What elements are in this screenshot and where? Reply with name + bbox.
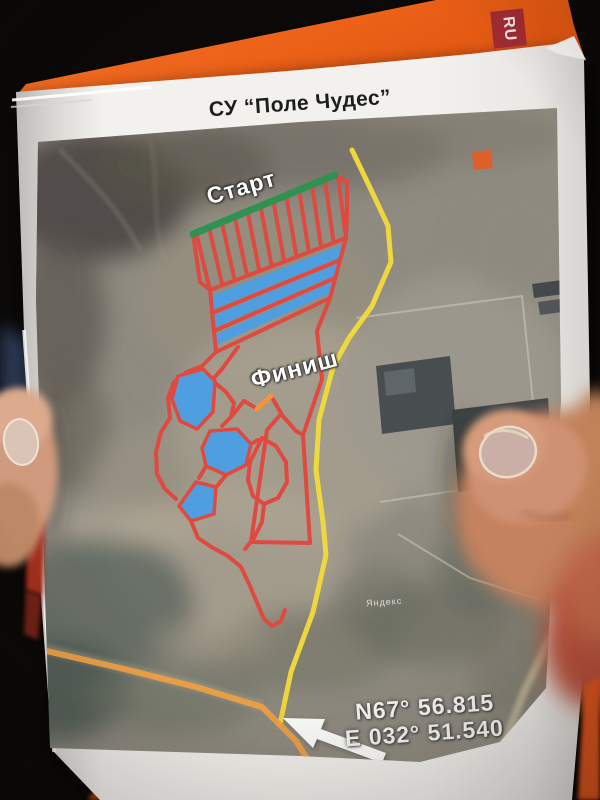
ru-logo: RU — [490, 8, 527, 48]
photo: СУ “Поле Чудес” RU Старт Финиш N67° 56.8… — [0, 0, 600, 800]
gps-coordinates: N67° 56.815 E 032° 51.540 — [342, 689, 504, 752]
orange-roof — [472, 150, 493, 170]
ru-logo-text: RU — [498, 15, 519, 42]
photo-scene — [0, 0, 600, 800]
